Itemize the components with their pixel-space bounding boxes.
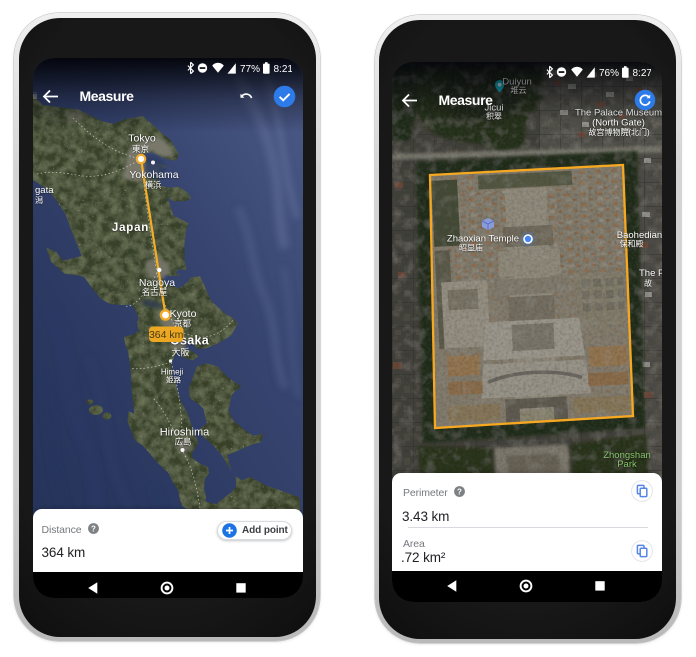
svg-text:8:27: 8:27 bbox=[633, 67, 652, 78]
svg-text:横浜: 横浜 bbox=[144, 180, 162, 190]
svg-text:8:21: 8:21 bbox=[274, 63, 293, 74]
svg-text:名古屋: 名古屋 bbox=[142, 287, 168, 297]
svg-text:東京: 東京 bbox=[132, 144, 149, 154]
svg-text:潟: 潟 bbox=[35, 195, 43, 205]
svg-text:姫路: 姫路 bbox=[166, 375, 181, 385]
svg-text:?: ? bbox=[91, 525, 96, 534]
svg-text:76%: 76% bbox=[599, 67, 619, 78]
svg-text:Park: Park bbox=[617, 459, 637, 470]
svg-text:故: 故 bbox=[644, 278, 652, 288]
svg-text:?: ? bbox=[457, 487, 462, 496]
svg-text:Tokyo: Tokyo bbox=[128, 133, 156, 145]
svg-text:gata: gata bbox=[35, 185, 54, 196]
svg-text:故宫博物院(北门): 故宫博物院(北门) bbox=[588, 127, 650, 137]
svg-text:364 km: 364 km bbox=[149, 329, 184, 341]
svg-text:Japan: Japan bbox=[112, 222, 149, 234]
svg-text:昭显庙: 昭显庙 bbox=[459, 243, 483, 253]
svg-text:大阪: 大阪 bbox=[171, 347, 189, 358]
svg-text:広島: 広島 bbox=[174, 437, 192, 447]
svg-text:77%: 77% bbox=[240, 63, 260, 74]
svg-text:The Pal: The Pal bbox=[639, 268, 662, 279]
svg-text:保和殿: 保和殿 bbox=[620, 239, 644, 249]
svg-text:Zhaoxian Temple: Zhaoxian Temple bbox=[447, 234, 519, 245]
